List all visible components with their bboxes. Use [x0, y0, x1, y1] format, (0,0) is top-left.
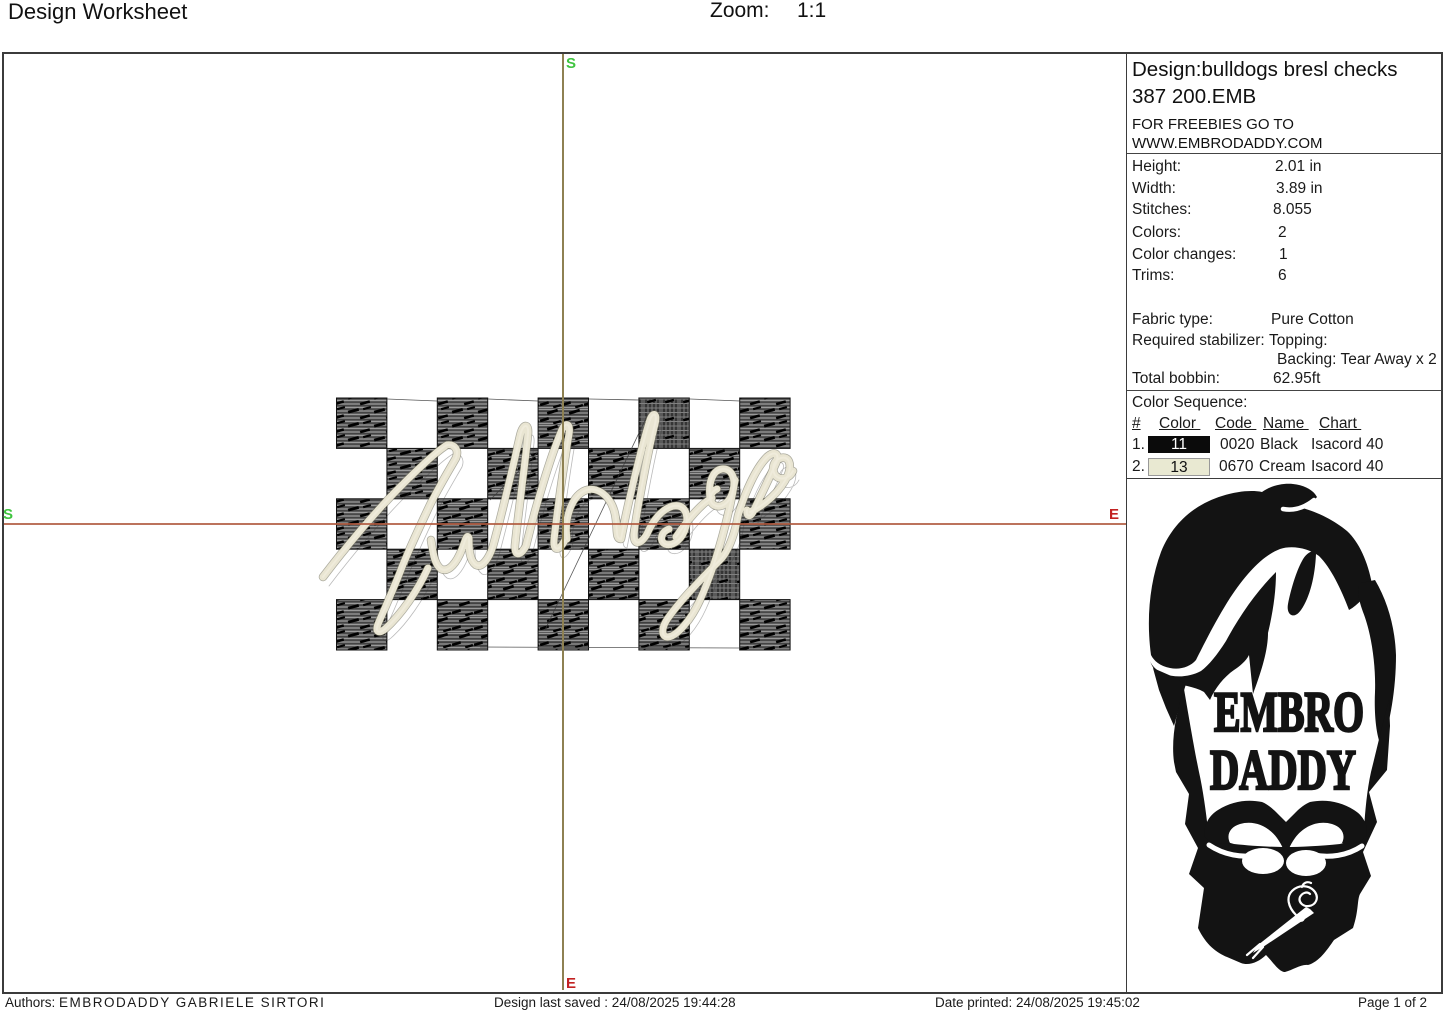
- svg-text:EMBRO: EMBRO: [1214, 682, 1364, 744]
- svg-text:DADDY: DADDY: [1210, 740, 1356, 802]
